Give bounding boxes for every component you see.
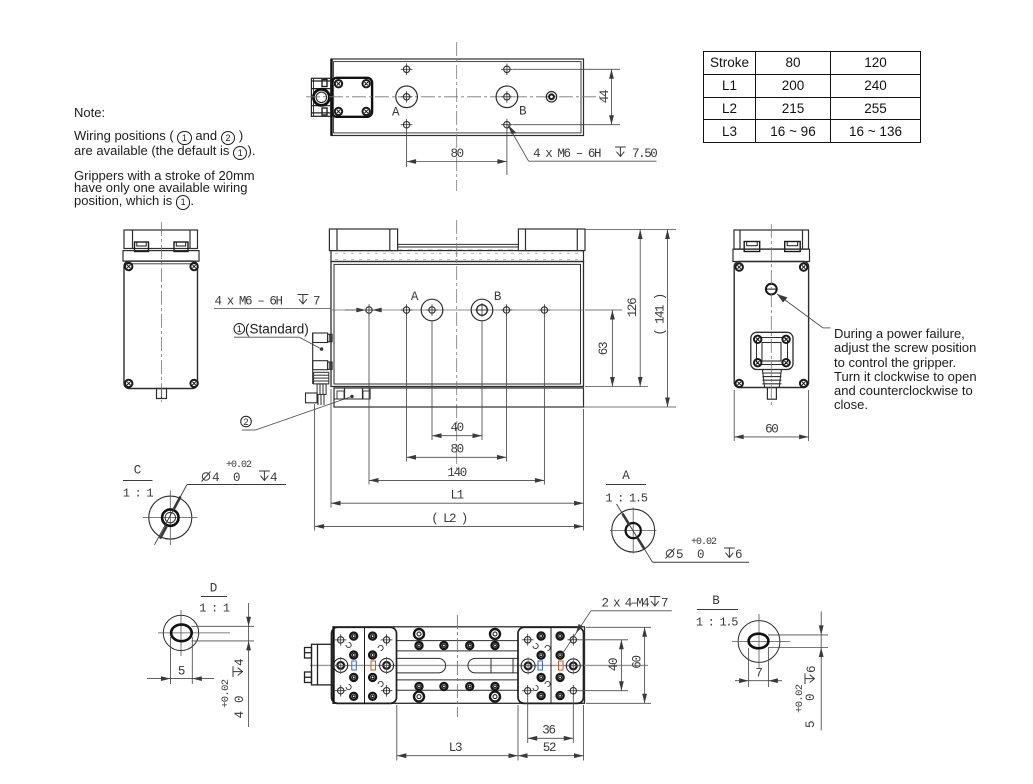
svg-text:7.50: 7.50 (632, 147, 657, 161)
svg-text:+0.02: +0.02 (794, 684, 806, 713)
svg-text:1: 1 (237, 324, 242, 334)
svg-text:1 : 1: 1 : 1 (123, 487, 154, 501)
svg-text:80: 80 (450, 443, 463, 457)
svg-text:36: 36 (542, 724, 555, 738)
svg-text:2: 2 (243, 417, 248, 427)
svg-text:A: A (392, 106, 400, 120)
svg-text:1 : 1: 1 : 1 (199, 602, 230, 616)
svg-text:2 x 4–M4: 2 x 4–M4 (602, 597, 650, 611)
svg-text:7: 7 (661, 597, 668, 611)
svg-text:D: D (210, 582, 218, 596)
svg-text:C: C (134, 464, 142, 478)
svg-text:52: 52 (543, 741, 556, 755)
svg-text:6: 6 (805, 666, 819, 673)
svg-text:0: 0 (804, 694, 818, 701)
svg-text:A: A (411, 290, 419, 304)
svg-text:L1: L1 (450, 489, 463, 503)
svg-text:63: 63 (597, 342, 611, 355)
svg-text:126: 126 (626, 298, 640, 317)
svg-text:+0.02: +0.02 (691, 537, 717, 548)
svg-text:7: 7 (755, 667, 762, 681)
svg-text:( L2 ): ( L2 ) (431, 512, 467, 526)
svg-text:1 : 1.5: 1 : 1.5 (605, 492, 647, 506)
svg-text:B: B (712, 594, 720, 608)
svg-text:+0.02: +0.02 (220, 679, 232, 708)
svg-text:40: 40 (607, 658, 621, 671)
svg-text:B: B (494, 290, 502, 304)
svg-text:5: 5 (804, 721, 818, 728)
svg-text:4: 4 (270, 471, 277, 485)
svg-text:4: 4 (212, 471, 219, 485)
svg-text:4: 4 (233, 659, 247, 666)
svg-text:5: 5 (676, 548, 683, 562)
svg-text:60: 60 (765, 422, 778, 436)
svg-text:140: 140 (447, 466, 466, 480)
svg-text:L3: L3 (449, 741, 462, 755)
svg-text:7: 7 (313, 295, 320, 309)
svg-text:6: 6 (735, 548, 742, 562)
svg-text:60: 60 (631, 656, 645, 669)
svg-text:0: 0 (697, 548, 704, 562)
svg-text:5: 5 (178, 665, 185, 679)
svg-text:B: B (519, 105, 527, 119)
svg-text:(Standard): (Standard) (245, 322, 309, 337)
svg-text:1 : 1.5: 1 : 1.5 (696, 616, 738, 630)
svg-text:44: 44 (598, 90, 612, 103)
svg-text:0: 0 (233, 696, 247, 703)
svg-text:+0.02: +0.02 (226, 460, 252, 471)
svg-text:( 141 ): ( 141 ) (654, 294, 668, 335)
svg-text:4 x M6 – 6H: 4 x M6 – 6H (533, 147, 601, 161)
svg-text:4 x M6 – 6H: 4 x M6 – 6H (215, 295, 283, 309)
svg-text:80: 80 (450, 147, 463, 161)
svg-text:4: 4 (233, 712, 247, 719)
svg-text:A: A (622, 469, 630, 483)
svg-text:40: 40 (450, 421, 463, 435)
svg-text:0: 0 (233, 471, 240, 485)
